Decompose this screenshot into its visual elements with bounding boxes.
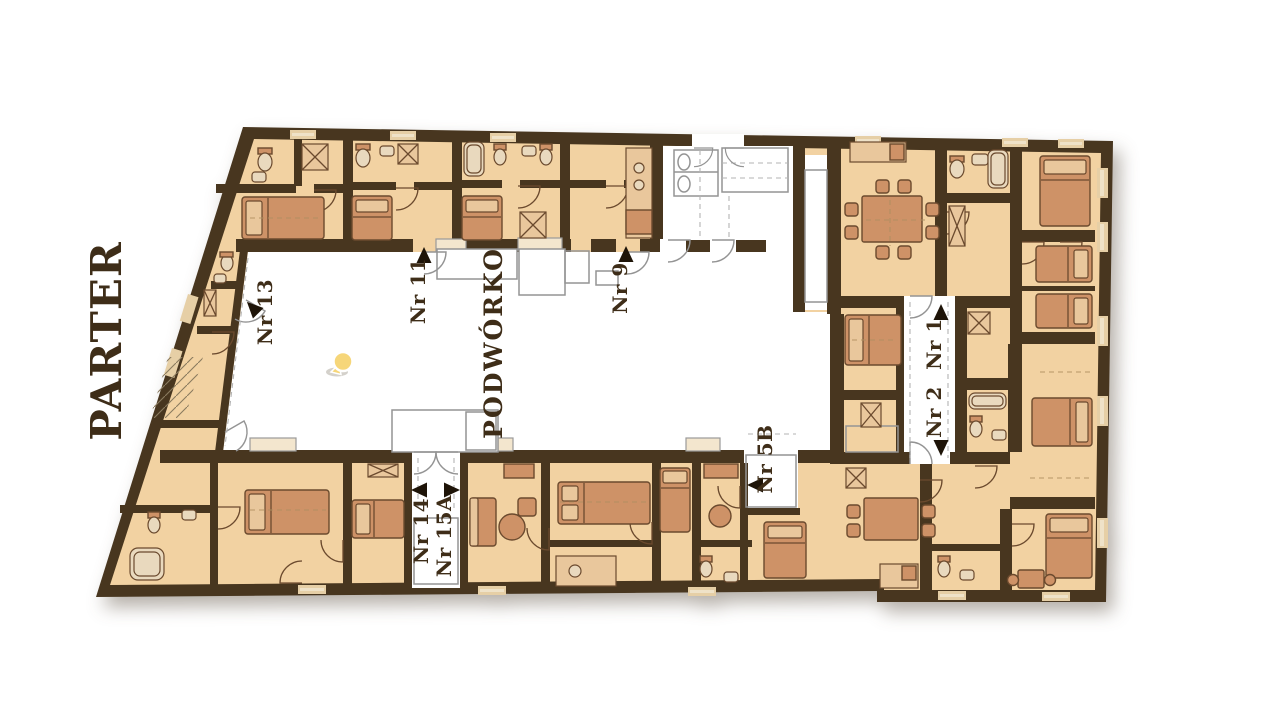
wardrobe [398, 144, 418, 164]
sink [214, 274, 226, 283]
toilet [540, 144, 552, 165]
desk [504, 464, 534, 478]
armchair [518, 498, 536, 516]
svg-text:Nr 5B: Nr 5B [753, 424, 777, 493]
toilet [970, 416, 982, 437]
bed [660, 468, 690, 532]
bathtub [464, 142, 484, 176]
gateway-stairs-strip [805, 155, 827, 310]
floor-plan-page: PARTER PODWÓRKO Nr 13 Nr 11 Nr 9 Nr 1 Nr… [0, 0, 1280, 701]
toilet [950, 156, 964, 178]
kitchen-counter [626, 148, 652, 238]
sink [724, 572, 738, 582]
bed [1032, 398, 1092, 446]
unit-label-nr11: Nr 11 [406, 247, 432, 324]
wardrobe [368, 464, 398, 477]
courtyard-label: PODWÓRKO [479, 247, 508, 439]
bathtub [969, 393, 1006, 409]
bed [352, 196, 392, 240]
kitchen-counter [850, 142, 906, 162]
bed [1040, 156, 1090, 226]
wardrobe [949, 206, 965, 246]
svg-text:Nr 15A: Nr 15A [432, 495, 456, 577]
wardrobe [846, 468, 866, 488]
wardrobe [520, 212, 546, 238]
radiator [204, 290, 216, 316]
round-table [499, 514, 525, 540]
desk [704, 464, 738, 478]
svg-text:Nr 11: Nr 11 [406, 258, 430, 324]
sink [252, 172, 266, 182]
sink [522, 146, 536, 156]
toilet [258, 148, 272, 171]
bed [764, 522, 806, 578]
round-table [709, 505, 731, 527]
wardrobe [968, 312, 990, 334]
bed [1046, 514, 1092, 578]
building [96, 127, 1113, 602]
wardrobe [302, 144, 328, 170]
unit-label-nr15a: Nr 15A [432, 483, 460, 578]
street-entrance-gap [692, 134, 744, 147]
toilet [220, 252, 233, 271]
bed [1036, 294, 1092, 328]
toilet [148, 512, 160, 533]
wardrobe [861, 403, 881, 427]
sofa [470, 498, 496, 546]
svg-text:Nr 2: Nr 2 [922, 386, 946, 438]
toilet [356, 144, 370, 167]
sink [960, 570, 974, 580]
sink [182, 510, 196, 520]
svg-text:Nr 14: Nr 14 [409, 498, 433, 564]
bed [558, 482, 650, 524]
svg-text:Nr 13: Nr 13 [253, 279, 277, 345]
floor-plan: PARTER PODWÓRKO Nr 13 Nr 11 Nr 9 Nr 1 Nr… [0, 0, 1280, 701]
svg-text:Nr 1: Nr 1 [922, 318, 946, 370]
sink [972, 154, 988, 165]
sink [380, 146, 394, 156]
toilet [494, 144, 506, 165]
stair-landing [519, 249, 565, 295]
kitchen-counter [880, 564, 918, 588]
bed [1036, 246, 1092, 282]
svg-text:Nr 9: Nr 9 [608, 262, 632, 314]
toilet [700, 556, 712, 577]
floor-title: PARTER [82, 241, 131, 441]
sink [992, 430, 1006, 440]
bed [245, 490, 329, 534]
bed [462, 196, 502, 240]
kitchen-counter [556, 556, 616, 586]
bed [352, 500, 404, 538]
toilet [938, 556, 950, 577]
bathtub [988, 150, 1008, 188]
bathtub [130, 548, 164, 580]
